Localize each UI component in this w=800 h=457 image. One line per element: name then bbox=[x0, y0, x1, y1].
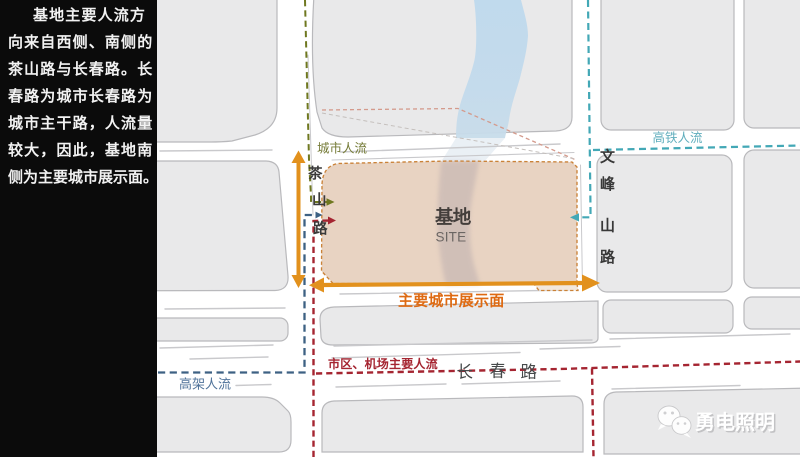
svg-text:茶: 茶 bbox=[308, 165, 323, 183]
svg-text:向来自西侧、南侧的: 向来自西侧、南侧的 bbox=[8, 33, 153, 51]
svg-text:侧为主要城市展示面。: 侧为主要城市展示面。 bbox=[8, 168, 158, 186]
svg-text:茶山路与长春路。长: 茶山路与长春路。长 bbox=[8, 60, 153, 78]
svg-text:勇电照明: 勇电照明 bbox=[695, 411, 775, 434]
svg-text:春路为城市长春路为: 春路为城市长春路为 bbox=[8, 87, 153, 105]
svg-text:高铁人流: 高铁人流 bbox=[653, 130, 704, 145]
svg-text:长: 长 bbox=[457, 363, 474, 382]
svg-text:主要城市展示面: 主要城市展示面 bbox=[398, 292, 504, 310]
svg-text:路: 路 bbox=[600, 248, 616, 266]
svg-text:较大，因此，基地南: 较大，因此，基地南 bbox=[8, 141, 153, 159]
svg-text:春: 春 bbox=[490, 362, 507, 381]
svg-text:基地主要人流方: 基地主要人流方 bbox=[32, 6, 146, 24]
svg-text:高架人流: 高架人流 bbox=[179, 377, 231, 392]
svg-text:路: 路 bbox=[521, 363, 538, 382]
svg-text:峰: 峰 bbox=[600, 175, 616, 193]
svg-text:文: 文 bbox=[600, 148, 616, 166]
svg-text:SITE: SITE bbox=[436, 230, 467, 245]
svg-text:山: 山 bbox=[312, 192, 327, 209]
svg-text:城市人流: 城市人流 bbox=[317, 141, 368, 156]
svg-text:山: 山 bbox=[600, 218, 615, 235]
svg-text:市区、机场主要人流: 市区、机场主要人流 bbox=[328, 356, 438, 371]
svg-text:城市主干路，人流量: 城市主干路，人流量 bbox=[8, 114, 153, 132]
svg-text:路: 路 bbox=[313, 220, 328, 238]
svg-text:基地: 基地 bbox=[435, 207, 472, 228]
